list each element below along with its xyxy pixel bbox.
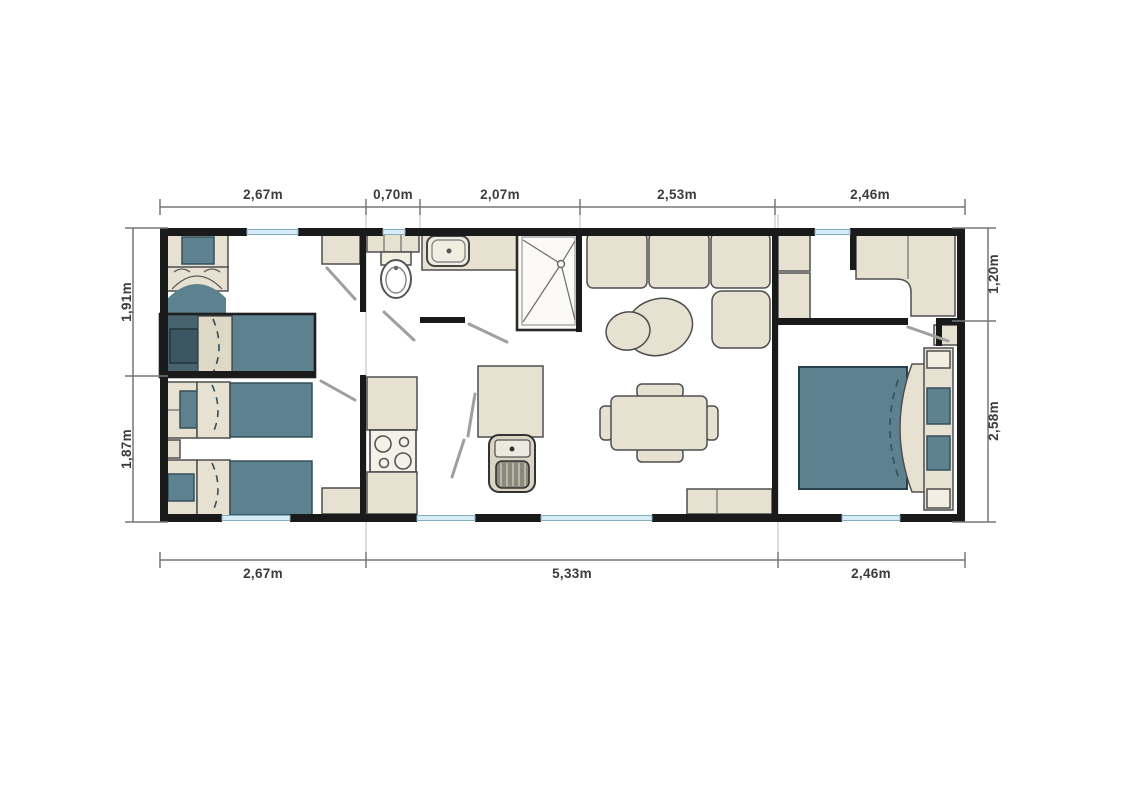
wall-right bbox=[957, 228, 965, 522]
dim-left-2: 1,87m bbox=[120, 407, 134, 491]
dim-left-1: 1,91m bbox=[120, 260, 134, 344]
kitchen bbox=[322, 366, 543, 514]
wall-bedroom-divider bbox=[160, 371, 315, 377]
dim-bottom-1: 2,67m bbox=[221, 567, 305, 581]
dim-top-5: 2,46m bbox=[828, 188, 912, 202]
window bbox=[383, 230, 405, 235]
wall-master-stub bbox=[936, 318, 942, 346]
dining-table bbox=[611, 396, 707, 450]
window bbox=[417, 516, 475, 521]
window bbox=[541, 516, 652, 521]
bathroom bbox=[422, 232, 580, 330]
wall-kitchen bbox=[360, 375, 366, 522]
window bbox=[842, 516, 900, 521]
double-bed bbox=[799, 367, 907, 489]
shower-cabin bbox=[517, 232, 580, 330]
kitchen-cabinet bbox=[367, 472, 417, 514]
kitchen-cabinet bbox=[367, 377, 417, 430]
bed-blanket bbox=[230, 461, 312, 515]
wall-bottom bbox=[290, 514, 417, 522]
wall-bottom bbox=[900, 514, 965, 522]
master-bedroom bbox=[799, 348, 953, 510]
sofa-cushion bbox=[711, 233, 770, 288]
dim-top-4: 2,53m bbox=[635, 188, 719, 202]
window bbox=[222, 516, 290, 521]
wall-top bbox=[850, 228, 965, 236]
dim-bottom-2: 5,33m bbox=[530, 567, 614, 581]
wall-top bbox=[298, 228, 383, 236]
wardrobe bbox=[322, 232, 360, 264]
bed-pillow bbox=[168, 474, 194, 501]
dim-bottom-3: 2,46m bbox=[829, 567, 913, 581]
bedroom-top-left bbox=[160, 232, 360, 377]
dim-top-2: 0,70m bbox=[351, 188, 435, 202]
nightstand-top bbox=[927, 436, 950, 470]
dim-right-2: 2,58m bbox=[987, 379, 1001, 463]
kitchen-island bbox=[478, 366, 543, 492]
entry-wardrobe-area bbox=[778, 233, 958, 345]
bed-horizontal-overlay bbox=[160, 314, 315, 377]
wall-entry-stub bbox=[850, 228, 856, 270]
nightstand-top bbox=[927, 388, 950, 424]
wc-room bbox=[367, 232, 419, 298]
dim-top-1: 2,67m bbox=[221, 188, 305, 202]
wall-living-entry bbox=[772, 228, 778, 318]
living-dining bbox=[587, 233, 772, 514]
wall-top bbox=[405, 228, 815, 236]
wall-top bbox=[160, 228, 247, 236]
wall-bathroom bbox=[420, 317, 465, 323]
sofa-corner-seat bbox=[712, 291, 770, 348]
wall-wc-left bbox=[360, 228, 366, 312]
nightstand bbox=[927, 489, 950, 508]
dim-top-3: 2,07m bbox=[458, 188, 542, 202]
floor-plan-drawing bbox=[0, 0, 1124, 803]
bed-pillow bbox=[170, 329, 198, 363]
window bbox=[815, 230, 850, 235]
wall-master-top bbox=[772, 318, 908, 325]
floor-plan: 2,67m 0,70m 2,07m 2,53m 2,46m 2,67m 5,33… bbox=[0, 0, 1124, 803]
bench bbox=[687, 489, 772, 514]
wall-bottom bbox=[652, 514, 842, 522]
nightstand-column bbox=[924, 348, 953, 510]
bed-pillow bbox=[182, 237, 214, 264]
bed-pillow bbox=[180, 391, 197, 428]
sofa-cushion bbox=[649, 233, 709, 288]
sofa-cushion bbox=[587, 233, 647, 288]
wall-bathroom-living bbox=[576, 228, 582, 332]
wall-bottom bbox=[160, 514, 222, 522]
wall-living-master bbox=[772, 325, 778, 522]
corner-wardrobe bbox=[856, 233, 955, 316]
window bbox=[247, 230, 298, 235]
nightstand bbox=[927, 351, 950, 368]
bed-blanket bbox=[230, 383, 312, 437]
island-counter bbox=[478, 366, 543, 437]
wall-bottom bbox=[475, 514, 541, 522]
bedroom-bottom-left bbox=[163, 382, 312, 516]
dim-right-1: 1,20m bbox=[987, 232, 1001, 316]
kitchen-side-cabinet bbox=[322, 488, 362, 514]
hall-cabinet bbox=[778, 273, 810, 323]
hall-cabinet bbox=[778, 233, 810, 271]
